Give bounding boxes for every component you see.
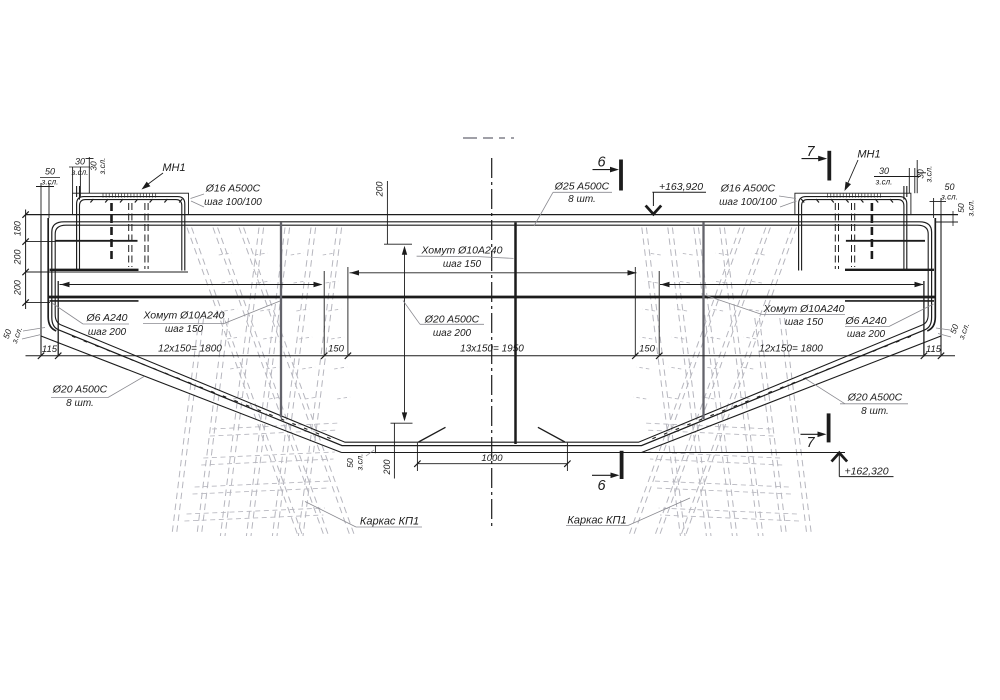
svg-text:шаг 100/100: шаг 100/100	[204, 197, 262, 208]
svg-text:шаг 100/100: шаг 100/100	[719, 197, 777, 208]
svg-text:12x150= 1800: 12x150= 1800	[759, 344, 823, 355]
svg-text:МН1: МН1	[857, 149, 880, 161]
svg-text:8 шт.: 8 шт.	[861, 406, 889, 417]
svg-text:180: 180	[13, 221, 23, 236]
svg-text:Ø6 A240: Ø6 A240	[844, 315, 886, 327]
svg-text:з.сл.: з.сл.	[98, 158, 107, 176]
svg-text:50: 50	[45, 167, 55, 177]
svg-text:150: 150	[328, 344, 345, 355]
svg-text:200: 200	[13, 280, 23, 296]
svg-text:МН1: МН1	[162, 162, 185, 174]
svg-text:50: 50	[345, 458, 355, 468]
svg-text:з.сл.: з.сл.	[71, 168, 89, 177]
svg-text:Хомут Ø10A240: Хомут Ø10A240	[763, 303, 845, 315]
svg-text:з.сл.: з.сл.	[41, 178, 59, 187]
svg-text:150: 150	[639, 344, 656, 355]
svg-text:7: 7	[806, 144, 815, 160]
svg-text:шаг 150: шаг 150	[785, 317, 824, 328]
svg-text:Ø16 A500C: Ø16 A500C	[720, 183, 776, 195]
svg-text:115: 115	[42, 344, 58, 355]
svg-text:з.сл.: з.сл.	[355, 454, 364, 472]
svg-text:з.сл.: з.сл.	[925, 166, 934, 184]
svg-text:з.сл.: з.сл.	[875, 178, 893, 187]
svg-text:115: 115	[926, 344, 942, 355]
svg-text:6: 6	[597, 155, 606, 171]
svg-text:12x150= 1800: 12x150= 1800	[158, 344, 222, 355]
svg-text:з.сл.: з.сл.	[940, 193, 958, 202]
svg-text:200: 200	[13, 249, 23, 265]
svg-text:+163,920: +163,920	[659, 181, 703, 193]
svg-text:шаг 200: шаг 200	[433, 328, 472, 339]
svg-text:Ø20 A500C: Ø20 A500C	[52, 384, 108, 396]
svg-text:30: 30	[75, 157, 85, 167]
svg-text:Ø6 A240: Ø6 A240	[85, 312, 127, 324]
svg-text:50: 50	[944, 182, 954, 192]
svg-text:30: 30	[879, 166, 889, 176]
svg-text:Хомут Ø10A240: Хомут Ø10A240	[143, 310, 225, 322]
svg-text:Каркас КП1: Каркас КП1	[567, 515, 626, 527]
svg-text:шаг 200: шаг 200	[847, 329, 886, 340]
svg-text:з.сл.: з.сл.	[967, 200, 976, 218]
svg-text:Ø16 A500C: Ø16 A500C	[205, 183, 261, 195]
svg-text:8 шт.: 8 шт.	[66, 398, 94, 409]
svg-text:200: 200	[375, 181, 385, 197]
svg-text:шаг 200: шаг 200	[88, 327, 127, 338]
svg-text:шаг 150: шаг 150	[165, 324, 204, 335]
svg-text:+162,320: +162,320	[844, 466, 888, 478]
svg-text:7: 7	[806, 435, 815, 451]
svg-text:Ø25 A500C: Ø25 A500C	[554, 181, 610, 193]
svg-text:200: 200	[382, 459, 392, 475]
svg-text:50: 50	[956, 203, 966, 213]
svg-text:Хомут Ø10A240: Хомут Ø10A240	[421, 245, 503, 257]
svg-text:1000: 1000	[481, 453, 503, 464]
svg-text:Каркас КП1: Каркас КП1	[360, 516, 419, 528]
svg-text:8 шт.: 8 шт.	[568, 194, 596, 205]
svg-text:6: 6	[597, 478, 606, 494]
svg-text:Ø20 A500C: Ø20 A500C	[424, 314, 480, 326]
svg-text:Ø20 A500C: Ø20 A500C	[847, 392, 903, 404]
svg-text:шаг 150: шаг 150	[443, 259, 482, 270]
svg-text:13x150= 1950: 13x150= 1950	[460, 344, 524, 355]
svg-text:30: 30	[89, 161, 99, 171]
